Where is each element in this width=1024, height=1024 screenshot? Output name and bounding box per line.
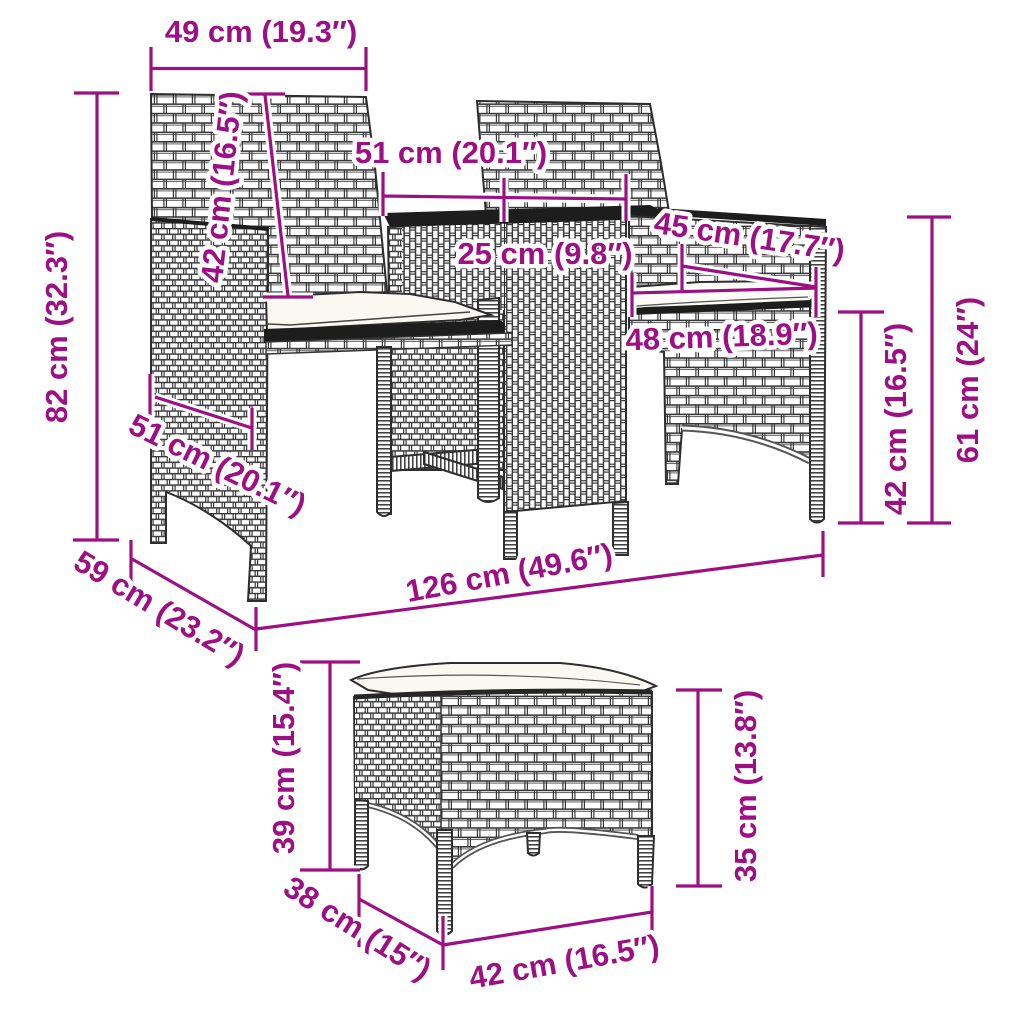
svg-text:25 cm (9.8″): 25 cm (9.8″) (457, 236, 632, 271)
svg-text:35 cm (13.8″): 35 cm (13.8″) (728, 690, 763, 882)
svg-text:61 cm (24″): 61 cm (24″) (950, 297, 985, 464)
svg-text:51 cm (20.1″): 51 cm (20.1″) (355, 135, 547, 170)
svg-text:39 cm (15.4″): 39 cm (15.4″) (266, 662, 301, 854)
svg-text:42 cm (16.5″): 42 cm (16.5″) (878, 323, 913, 515)
svg-text:48 cm (18.9″): 48 cm (18.9″) (625, 316, 818, 358)
svg-text:82 cm (32.3″): 82 cm (32.3″) (39, 231, 74, 423)
svg-text:49 cm (19.3″): 49 cm (19.3″) (165, 14, 357, 49)
